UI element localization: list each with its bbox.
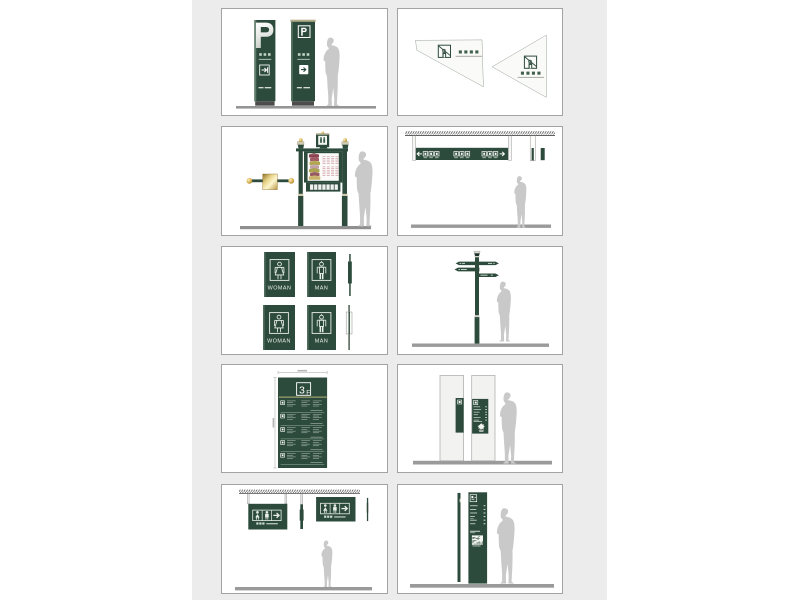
svg-text:WOMAN: WOMAN	[267, 338, 291, 344]
svg-text:3: 3	[299, 385, 305, 397]
svg-text:MAN: MAN	[315, 338, 328, 344]
svg-text:WOMAN: WOMAN	[268, 285, 292, 291]
svg-text:F: F	[306, 389, 310, 396]
svg-text:MAN: MAN	[315, 285, 328, 291]
